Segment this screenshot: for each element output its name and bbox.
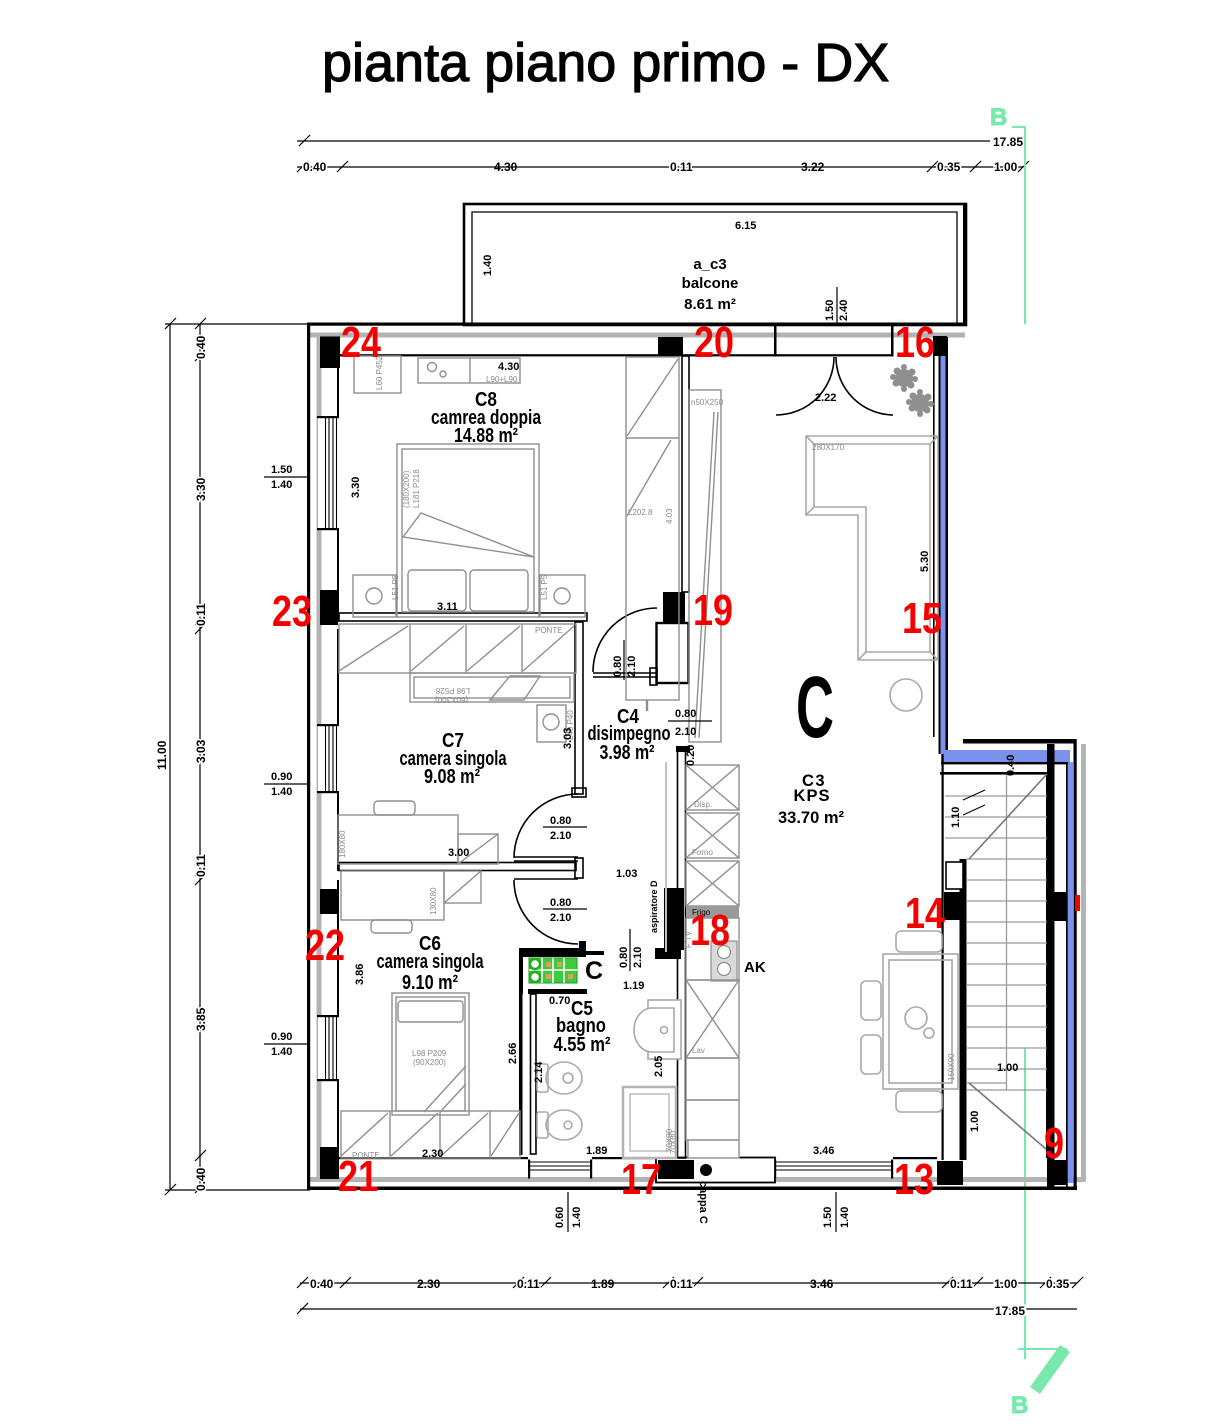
svg-text:2.66: 2.66 <box>507 1043 519 1064</box>
svg-text:0.11: 0.11 <box>517 1277 540 1291</box>
svg-text:20: 20 <box>694 318 734 367</box>
svg-text:11.00: 11.00 <box>155 740 169 770</box>
svg-text:17: 17 <box>621 1155 661 1204</box>
svg-text:17.85: 17.85 <box>993 135 1023 149</box>
svg-text:3.86: 3.86 <box>354 964 366 985</box>
svg-text:9: 9 <box>1044 1119 1064 1168</box>
svg-text:(180X200): (180X200) <box>402 470 411 508</box>
svg-text:1.00: 1.00 <box>997 1062 1018 1074</box>
svg-text:2.30: 2.30 <box>422 1148 443 1160</box>
svg-text:KPS: KPS <box>794 787 831 805</box>
svg-text:1.50: 1.50 <box>822 1207 834 1228</box>
svg-text:13: 13 <box>894 1155 934 1204</box>
svg-text:130X80: 130X80 <box>429 887 438 915</box>
svg-text:150X90: 150X90 <box>947 1053 956 1081</box>
svg-text:0.40: 0.40 <box>194 1167 208 1191</box>
svg-text:16: 16 <box>895 318 935 367</box>
svg-text:0.35: 0.35 <box>1046 1277 1070 1291</box>
svg-text:0.11: 0.11 <box>670 1277 693 1291</box>
svg-text:1.89: 1.89 <box>586 1145 607 1157</box>
svg-text:33.70 m²: 33.70 m² <box>778 809 845 827</box>
svg-text:3.22: 3.22 <box>801 160 825 174</box>
svg-text:23: 23 <box>272 587 312 636</box>
svg-text:24: 24 <box>341 318 381 367</box>
svg-text:C: C <box>585 957 603 985</box>
svg-text:aspiratore D: aspiratore D <box>649 880 659 933</box>
svg-text:pianta piano primo - DX: pianta piano primo - DX <box>322 33 889 93</box>
svg-text:0.20: 0.20 <box>685 745 697 766</box>
svg-text:Disp.: Disp. <box>694 800 712 809</box>
svg-text:PONTE: PONTE <box>535 626 563 635</box>
svg-text:0.80: 0.80 <box>550 815 571 827</box>
svg-text:280X170: 280X170 <box>812 443 845 452</box>
svg-text:4.30: 4.30 <box>498 361 519 373</box>
svg-text:22: 22 <box>305 921 345 970</box>
svg-text:L181 P218: L181 P218 <box>412 469 421 508</box>
svg-text:0.40: 0.40 <box>1005 755 1017 776</box>
svg-text:3.98 m²: 3.98 m² <box>600 742 655 764</box>
svg-text:2.22: 2.22 <box>815 392 836 404</box>
svg-text:(60X300): (60X300) <box>435 695 468 704</box>
svg-text:70X60: 70X60 <box>669 1130 678 1154</box>
svg-text:2.10: 2.10 <box>550 912 571 924</box>
svg-text:1.40: 1.40 <box>271 1046 292 1058</box>
svg-text:19: 19 <box>693 586 733 635</box>
svg-text:AK: AK <box>744 959 766 976</box>
svg-text:8.61 m²: 8.61 m² <box>684 296 736 313</box>
svg-text:L51 P5: L51 P5 <box>540 574 549 600</box>
svg-text:14: 14 <box>905 889 945 938</box>
svg-text:3.00: 3.00 <box>448 847 469 859</box>
svg-text:0.70: 0.70 <box>549 995 570 1007</box>
svg-text:L98 P528: L98 P528 <box>435 686 470 695</box>
svg-text:camera singola: camera singola <box>377 951 485 973</box>
svg-text:L90+L90: L90+L90 <box>486 375 518 384</box>
svg-text:3.46: 3.46 <box>810 1277 834 1291</box>
svg-text:17.85: 17.85 <box>995 1304 1025 1318</box>
svg-text:1.50: 1.50 <box>271 464 292 476</box>
svg-text:cappa C: cappa C <box>697 1181 709 1224</box>
svg-text:6.15: 6.15 <box>735 220 756 232</box>
svg-text:L51 P5: L51 P5 <box>391 574 400 600</box>
svg-text:0.90: 0.90 <box>271 771 292 783</box>
svg-text:0.40: 0.40 <box>194 335 208 359</box>
svg-text:4.30: 4.30 <box>494 160 518 174</box>
svg-text:1.00: 1.00 <box>969 1111 981 1132</box>
svg-text:4.55 m²: 4.55 m² <box>554 1034 611 1056</box>
svg-text:2.10: 2.10 <box>632 947 644 968</box>
svg-text:a_c3: a_c3 <box>693 256 726 273</box>
svg-text:1.40: 1.40 <box>271 479 292 491</box>
svg-text:0.40: 0.40 <box>310 1277 334 1291</box>
svg-text:3.30: 3.30 <box>194 477 208 501</box>
svg-text:14.88 m²: 14.88 m² <box>454 425 518 447</box>
svg-text:15: 15 <box>902 594 942 643</box>
svg-text:B: B <box>1011 1392 1028 1419</box>
svg-text:0.60: 0.60 <box>554 1207 566 1228</box>
svg-text:2.05: 2.05 <box>653 1056 665 1077</box>
svg-text:2.40: 2.40 <box>838 300 850 321</box>
svg-text:2.10: 2.10 <box>675 726 696 738</box>
svg-text:0.90: 0.90 <box>271 1031 292 1043</box>
svg-text:2.30: 2.30 <box>417 1277 441 1291</box>
svg-text:3.46: 3.46 <box>813 1145 834 1157</box>
svg-text:3.85: 3.85 <box>194 1007 208 1031</box>
svg-text:Forno: Forno <box>692 848 713 857</box>
svg-text:2.10: 2.10 <box>626 656 638 677</box>
svg-text:balcone: balcone <box>682 275 739 292</box>
svg-text:0.80: 0.80 <box>618 947 630 968</box>
svg-text:B: B <box>990 104 1007 131</box>
svg-text:1.03: 1.03 <box>616 868 637 880</box>
svg-text:1.89: 1.89 <box>591 1277 615 1291</box>
svg-text:1.50: 1.50 <box>824 300 836 321</box>
svg-text:3.03: 3.03 <box>194 739 208 763</box>
svg-text:0.11: 0.11 <box>670 160 693 174</box>
svg-text:2.10: 2.10 <box>550 830 571 842</box>
svg-text:0.11: 0.11 <box>950 1277 973 1291</box>
svg-text:1.40: 1.40 <box>571 1207 583 1228</box>
svg-text:1.40: 1.40 <box>482 255 494 276</box>
svg-text:Lav: Lav <box>692 1046 705 1055</box>
svg-text:9.10 m²: 9.10 m² <box>402 972 458 994</box>
svg-text:1.00: 1.00 <box>994 1277 1018 1291</box>
svg-text:1.40: 1.40 <box>839 1207 851 1228</box>
svg-text:1.00: 1.00 <box>994 160 1018 174</box>
svg-text:C: C <box>796 659 834 756</box>
svg-text:1.10: 1.10 <box>950 807 962 828</box>
svg-text:(90X200): (90X200) <box>413 1058 446 1067</box>
svg-text:n50X250: n50X250 <box>691 398 724 407</box>
svg-text:0.80: 0.80 <box>675 708 696 720</box>
svg-text:L98 P209: L98 P209 <box>412 1049 447 1058</box>
svg-text:0.11: 0.11 <box>194 854 208 877</box>
svg-text:0.40: 0.40 <box>303 160 327 174</box>
svg-text:3.11: 3.11 <box>437 601 458 613</box>
svg-text:18: 18 <box>690 906 730 955</box>
svg-text:1.19: 1.19 <box>623 980 644 992</box>
svg-text:2.14: 2.14 <box>533 1061 545 1083</box>
svg-text:0.35: 0.35 <box>937 160 961 174</box>
svg-text:21: 21 <box>338 1152 378 1201</box>
svg-text:0.11: 0.11 <box>194 603 208 626</box>
svg-text:3.03: 3.03 <box>562 728 574 749</box>
svg-text:0.80: 0.80 <box>550 897 571 909</box>
svg-text:9.08 m²: 9.08 m² <box>424 766 480 788</box>
svg-text:L202.8: L202.8 <box>628 508 653 517</box>
svg-text:1.40: 1.40 <box>271 786 292 798</box>
svg-text:3.30: 3.30 <box>350 477 362 498</box>
svg-text:5.30: 5.30 <box>919 551 931 572</box>
svg-text:0.80: 0.80 <box>612 656 624 677</box>
svg-text:4.03: 4.03 <box>665 508 674 524</box>
svg-text:180X80: 180X80 <box>338 830 347 858</box>
